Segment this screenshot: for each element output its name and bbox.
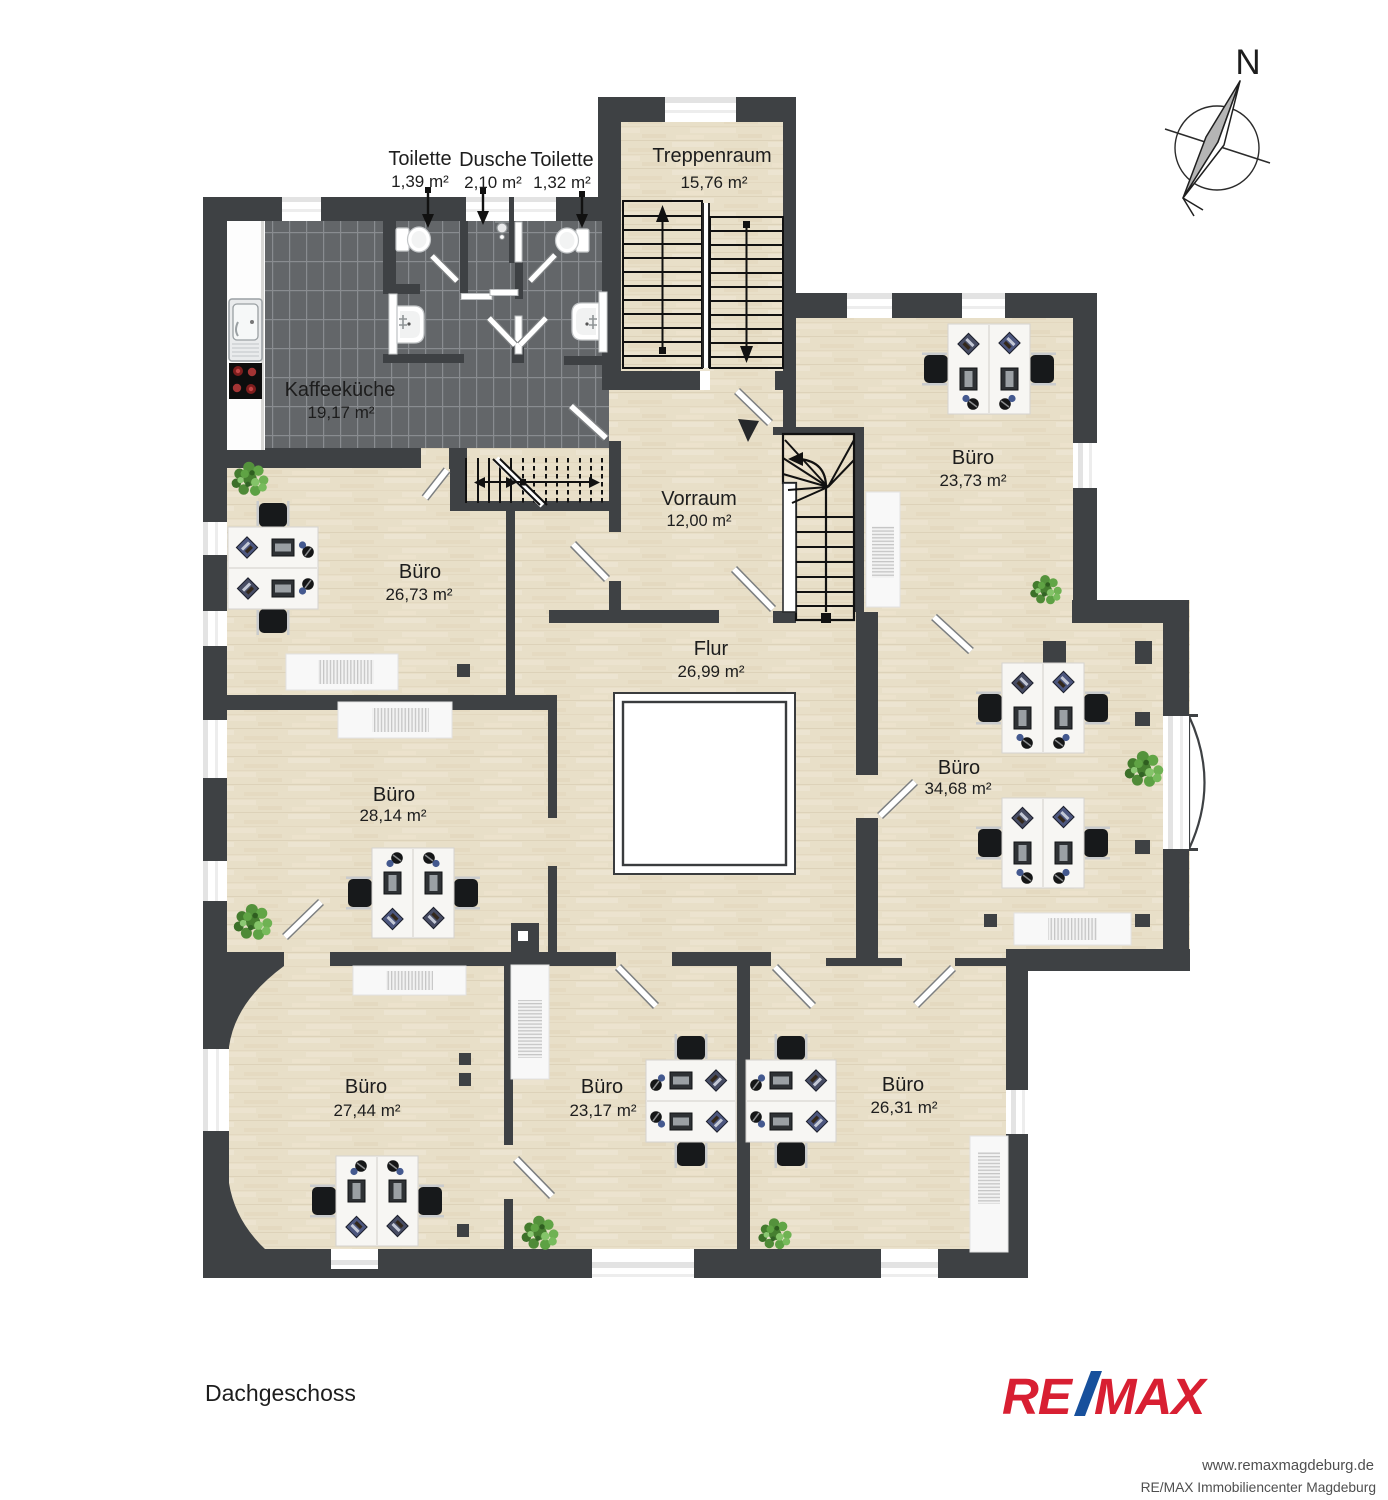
svg-text:RE: RE (1002, 1368, 1074, 1425)
svg-text:Treppenraum: Treppenraum (652, 145, 771, 167)
svg-text:Büro: Büro (952, 447, 994, 469)
svg-text:19,17 m²: 19,17 m² (307, 403, 374, 422)
svg-text:12,00 m²: 12,00 m² (666, 512, 732, 530)
svg-text:Flur: Flur (694, 638, 729, 660)
svg-text:www.remaxmagdeburg.de: www.remaxmagdeburg.de (1201, 1458, 1374, 1474)
svg-text:Kaffeeküche: Kaffeeküche (285, 379, 396, 401)
svg-text:RE/MAX Immobiliencenter Magdeb: RE/MAX Immobiliencenter Magdeburg (1141, 1480, 1376, 1495)
svg-text:Toilette: Toilette (530, 149, 593, 171)
svg-text:26,99 m²: 26,99 m² (677, 662, 744, 681)
svg-text:15,76 m²: 15,76 m² (680, 173, 747, 192)
svg-text:23,17 m²: 23,17 m² (569, 1101, 636, 1120)
svg-text:Büro: Büro (345, 1076, 387, 1098)
svg-text:23,73 m²: 23,73 m² (939, 471, 1006, 490)
svg-text:26,73 m²: 26,73 m² (385, 585, 452, 604)
svg-text:Vorraum: Vorraum (661, 488, 737, 510)
svg-text:Dusche: Dusche (459, 149, 527, 171)
svg-text:Büro: Büro (373, 784, 415, 806)
svg-text:MAX: MAX (1094, 1368, 1208, 1425)
svg-text:Büro: Büro (882, 1074, 924, 1096)
svg-text:34,68 m²: 34,68 m² (924, 779, 991, 798)
svg-text:2,10 m²: 2,10 m² (464, 173, 522, 192)
svg-text:1,32 m²: 1,32 m² (533, 173, 591, 192)
svg-text:Büro: Büro (581, 1076, 623, 1098)
svg-text:26,31 m²: 26,31 m² (870, 1098, 937, 1117)
svg-text:Dachgeschoss: Dachgeschoss (205, 1380, 356, 1406)
svg-text:Büro: Büro (399, 561, 441, 583)
svg-text:27,44 m²: 27,44 m² (333, 1101, 400, 1120)
svg-text:N: N (1235, 43, 1260, 82)
svg-text:Toilette: Toilette (388, 148, 451, 170)
svg-text:1,39 m²: 1,39 m² (391, 172, 449, 191)
svg-text:28,14 m²: 28,14 m² (359, 806, 426, 825)
svg-text:Büro: Büro (938, 757, 980, 779)
